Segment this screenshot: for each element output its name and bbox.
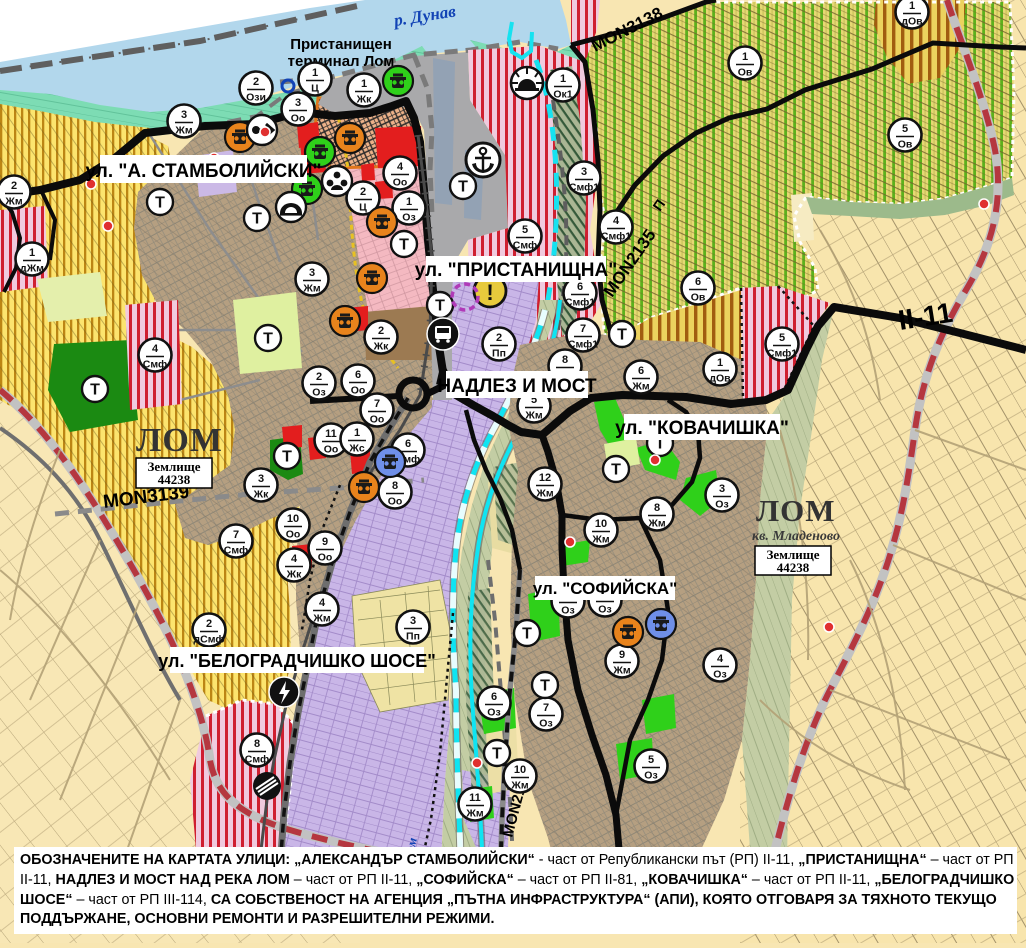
svg-text:5: 5 <box>648 754 654 766</box>
svg-text:11: 11 <box>325 428 337 440</box>
svg-text:Жм: Жм <box>174 125 192 137</box>
svg-text:Смф1: Смф1 <box>569 182 599 194</box>
svg-text:4: 4 <box>613 215 620 227</box>
svg-text:4: 4 <box>717 653 724 665</box>
svg-text:6: 6 <box>491 691 497 703</box>
svg-text:T: T <box>611 462 621 479</box>
svg-text:Смф: Смф <box>513 240 537 252</box>
svg-text:ул. "А. СТАМБОЛИЙСКИ": ул. "А. СТАМБОЛИЙСКИ" <box>85 160 321 182</box>
svg-text:T: T <box>90 382 100 399</box>
svg-text:7: 7 <box>543 702 549 714</box>
svg-text:Оз: Оз <box>402 212 415 224</box>
svg-text:4: 4 <box>319 597 326 609</box>
svg-text:5: 5 <box>902 123 908 135</box>
svg-text:Оо: Оо <box>388 496 403 508</box>
svg-text:1: 1 <box>361 78 367 90</box>
svg-text:НАДЛЕЗ И МОСТ: НАДЛЕЗ И МОСТ <box>437 376 597 397</box>
svg-text:Жм: Жм <box>465 808 483 820</box>
svg-text:Жк: Жк <box>286 569 302 581</box>
svg-text:Смф1: Смф1 <box>601 231 631 243</box>
svg-text:10: 10 <box>595 518 607 530</box>
svg-text:44238: 44238 <box>777 560 810 575</box>
svg-text:Ц: Ц <box>311 83 319 95</box>
svg-text:5: 5 <box>522 224 528 236</box>
svg-text:Пп: Пп <box>492 348 506 360</box>
svg-text:3: 3 <box>181 109 187 121</box>
svg-text:8: 8 <box>392 480 398 492</box>
svg-text:4: 4 <box>291 553 298 565</box>
svg-text:Оз: Оз <box>713 669 726 681</box>
svg-text:44238: 44238 <box>158 472 191 487</box>
svg-text:Жм: Жм <box>302 283 320 295</box>
svg-text:Смф: Смф <box>245 754 269 766</box>
svg-text:кв. Младеново: кв. Младеново <box>752 529 840 544</box>
svg-text:Оо: Оо <box>351 385 366 397</box>
svg-text:3: 3 <box>410 615 416 627</box>
svg-text:10: 10 <box>287 513 299 525</box>
svg-text:2: 2 <box>378 325 384 337</box>
svg-text:6: 6 <box>355 369 361 381</box>
svg-text:2: 2 <box>11 180 17 192</box>
svg-text:4: 4 <box>397 161 404 173</box>
svg-text:7: 7 <box>580 323 586 335</box>
svg-text:ЛОМ: ЛОМ <box>756 493 835 528</box>
svg-text:1: 1 <box>560 73 566 85</box>
svg-text:6: 6 <box>577 281 583 293</box>
svg-text:Оо: Оо <box>324 444 339 456</box>
svg-text:дСмф: дСмф <box>193 634 224 646</box>
svg-text:Пп: Пп <box>406 631 420 643</box>
svg-text:Оз: Оз <box>539 718 552 730</box>
svg-text:Ов: Ов <box>738 67 753 79</box>
svg-text:Жм: Жм <box>312 613 330 625</box>
svg-text:Жс: Жс <box>348 443 364 455</box>
svg-text:1: 1 <box>354 427 360 439</box>
svg-text:12: 12 <box>539 472 551 484</box>
svg-text:6: 6 <box>695 276 701 288</box>
svg-text:Жк: Жк <box>253 489 269 501</box>
svg-text:Оз: Оз <box>644 770 657 782</box>
svg-text:Жк: Жк <box>373 341 389 353</box>
svg-text:Жм: Жм <box>631 381 649 393</box>
svg-text:Жм: Жм <box>612 665 630 677</box>
svg-text:T: T <box>492 746 502 763</box>
svg-text:Жм: Жм <box>591 534 609 546</box>
svg-text:Оз: Оз <box>561 605 574 617</box>
svg-text:Оз: Оз <box>312 387 325 399</box>
svg-text:Смф1: Смф1 <box>565 297 595 309</box>
svg-text:T: T <box>617 327 627 344</box>
svg-text:8: 8 <box>562 354 568 366</box>
svg-text:9: 9 <box>322 536 328 548</box>
svg-text:дОв: дОв <box>901 16 923 28</box>
svg-text:1: 1 <box>742 51 748 63</box>
svg-text:3: 3 <box>309 267 315 279</box>
svg-text:1: 1 <box>717 357 723 369</box>
svg-text:Жм: Жм <box>510 780 528 792</box>
svg-text:T: T <box>282 449 292 466</box>
svg-text:ЛОМ: ЛОМ <box>136 422 223 459</box>
svg-text:2: 2 <box>496 332 502 344</box>
svg-text:9: 9 <box>619 649 625 661</box>
svg-text:Ози: Ози <box>246 92 266 104</box>
svg-text:5: 5 <box>779 332 785 344</box>
svg-text:1: 1 <box>909 0 915 12</box>
svg-text:Жк: Жк <box>356 94 372 106</box>
svg-text:Жм: Жм <box>524 410 542 422</box>
svg-text:Жм: Жм <box>535 488 553 500</box>
svg-text:дЖм: дЖм <box>20 263 44 275</box>
svg-text:7: 7 <box>374 398 380 410</box>
svg-text:дОв: дОв <box>709 373 731 385</box>
svg-text:Пристанищен: Пристанищен <box>290 36 392 53</box>
svg-text:7: 7 <box>233 529 239 541</box>
svg-text:Смф: Смф <box>143 359 167 371</box>
svg-text:Оо: Оо <box>393 177 408 189</box>
svg-text:T: T <box>155 195 165 212</box>
svg-text:ул. "СОФИЙСКА": ул. "СОФИЙСКА" <box>533 579 678 598</box>
svg-text:2: 2 <box>360 186 366 198</box>
svg-text:ул. "БЕЛОГРАДЧИШКО ШОСЕ": ул. "БЕЛОГРАДЧИШКО ШОСЕ" <box>158 651 436 671</box>
svg-text:Оо: Оо <box>291 113 306 125</box>
svg-text:Ов: Ов <box>691 292 706 304</box>
svg-text:6: 6 <box>638 365 644 377</box>
svg-text:Оз: Оз <box>598 604 611 616</box>
svg-text:11: 11 <box>469 792 481 804</box>
svg-text:1: 1 <box>312 67 318 79</box>
svg-text:ул. "КОВАЧИШКА": ул. "КОВАЧИШКА" <box>615 418 789 439</box>
svg-text:Ов: Ов <box>898 139 913 151</box>
svg-text:Оз: Оз <box>487 707 500 719</box>
svg-text:3: 3 <box>258 473 264 485</box>
svg-text:10: 10 <box>514 764 526 776</box>
svg-text:T: T <box>435 298 445 315</box>
svg-text:8: 8 <box>254 738 260 750</box>
svg-text:Смф: Смф <box>224 545 248 557</box>
svg-text:6: 6 <box>405 438 411 450</box>
svg-text:2: 2 <box>206 618 212 630</box>
svg-text:T: T <box>263 331 273 348</box>
svg-text:Ц: Ц <box>359 202 367 214</box>
svg-text:T: T <box>522 626 532 643</box>
svg-text:ул. "ПРИСТАНИЩНА": ул. "ПРИСТАНИЩНА" <box>415 260 618 281</box>
svg-text:T: T <box>399 237 409 254</box>
svg-text:T: T <box>458 179 468 196</box>
svg-text:Ок1: Ок1 <box>553 89 572 101</box>
svg-text:8: 8 <box>654 502 660 514</box>
svg-text:1: 1 <box>29 247 35 259</box>
svg-text:Оо: Оо <box>370 414 385 426</box>
svg-text:T: T <box>252 211 262 228</box>
svg-text:2: 2 <box>316 371 322 383</box>
svg-text:Оо: Оо <box>286 529 301 541</box>
svg-text:T: T <box>540 678 550 695</box>
svg-text:Оо: Оо <box>318 552 333 564</box>
svg-text:Жм: Жм <box>4 196 22 208</box>
svg-text:3: 3 <box>719 483 725 495</box>
svg-text:Смф1: Смф1 <box>767 348 797 360</box>
svg-text:1: 1 <box>406 196 412 208</box>
svg-text:4: 4 <box>152 343 159 355</box>
svg-text:3: 3 <box>581 166 587 178</box>
svg-text:!: ! <box>486 280 493 305</box>
svg-text:3: 3 <box>295 97 301 109</box>
svg-text:Смф1: Смф1 <box>568 339 598 351</box>
svg-text:Жм: Жм <box>647 518 665 530</box>
svg-text:Оз: Оз <box>715 499 728 511</box>
svg-text:2: 2 <box>253 76 259 88</box>
